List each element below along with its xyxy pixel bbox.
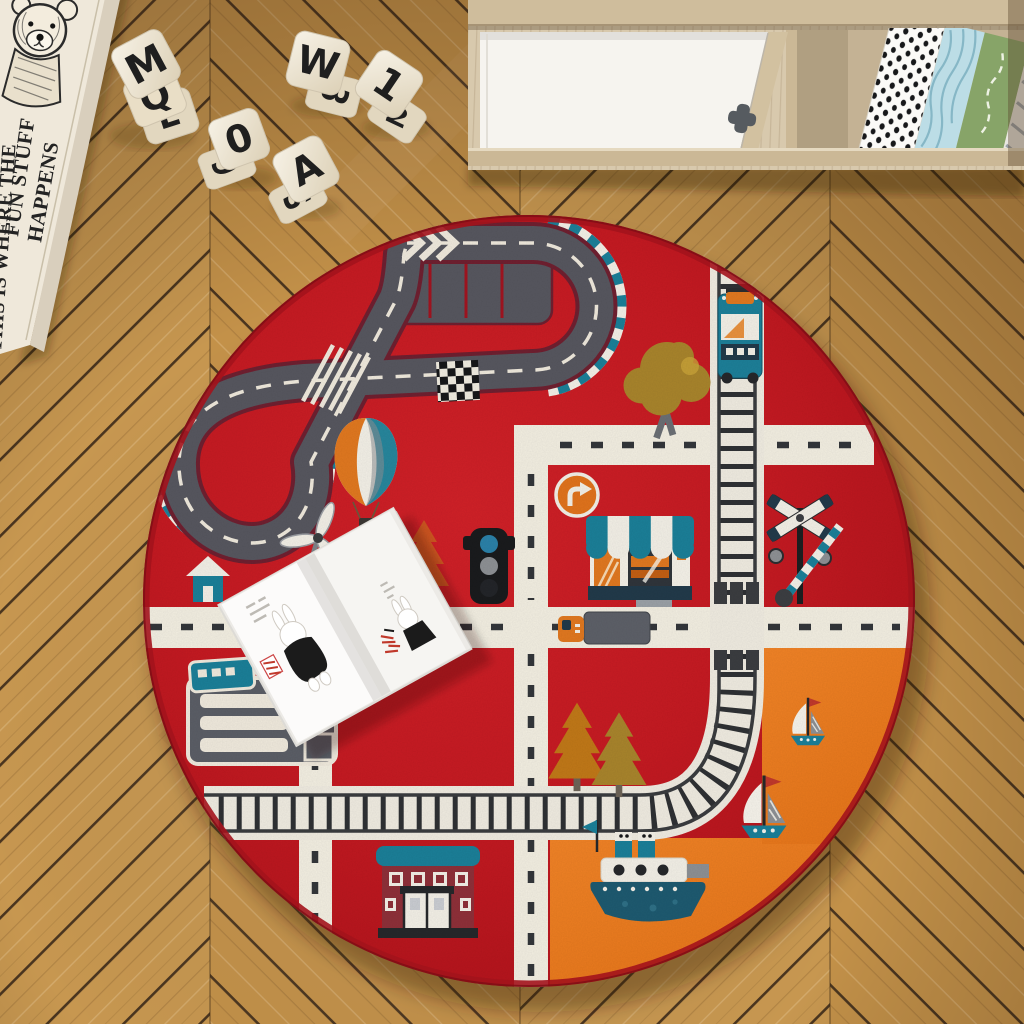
cabinet-door <box>480 32 768 150</box>
playroom-scene: THIS IS WHERE THE FUN STUFF HAPPENS E Q … <box>0 0 1024 1024</box>
cabinet <box>468 0 1024 208</box>
